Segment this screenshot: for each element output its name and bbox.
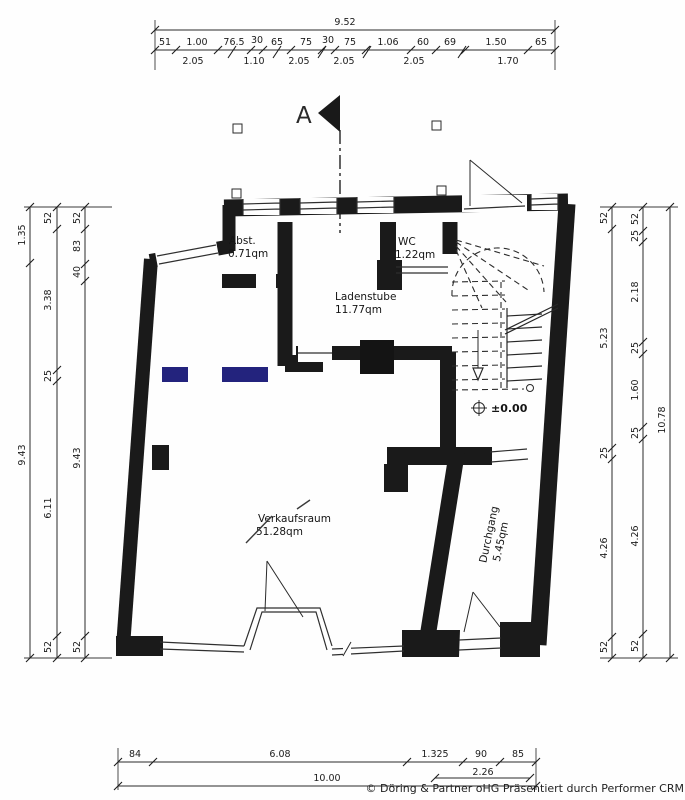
dim-left: 1.35 <box>17 224 28 245</box>
dim-left: 83 <box>72 240 83 252</box>
room-abst-name: Abst. <box>229 235 256 247</box>
dim-left: 52 <box>43 641 54 653</box>
dim-right: 52 <box>630 213 641 225</box>
dim-top: 30 <box>251 35 263 46</box>
staircase <box>452 240 558 392</box>
dim-right: 5.23 <box>599 327 610 348</box>
highlight-marks <box>162 367 268 382</box>
dim-right: 2.18 <box>630 281 641 302</box>
diagonal-window <box>155 241 219 268</box>
dim-right: 52 <box>599 212 610 224</box>
dim-bottom: 84 <box>129 749 141 760</box>
room-abst-area: 0.71qm <box>228 248 268 260</box>
dim-top: 75 <box>300 37 312 48</box>
wall-pier <box>402 630 460 657</box>
dim-left: 3.38 <box>43 289 54 310</box>
door-opening <box>462 195 527 212</box>
section-letter: A <box>296 103 312 129</box>
dim-bottom-overall: 10.00 <box>313 773 340 784</box>
room-ladenstube-area: 11.77qm <box>335 304 382 316</box>
stair-direction-arrow-icon <box>473 368 483 380</box>
dim-chain-left: 1.35 9.43 52 3.38 25 6.11 52 52 83 40 9.… <box>17 203 89 662</box>
room-wc-area: 1.22qm <box>395 249 435 261</box>
dim-left: 40 <box>72 266 83 278</box>
dim-right: 4.26 <box>630 525 641 546</box>
copyright-text: © Döring & Partner oHG Präsentiert durch… <box>366 782 684 795</box>
dim-right: 25 <box>630 342 641 354</box>
dim-chain-right: 52 5.23 25 4.26 52 52 25 2.18 25 1.60 25… <box>599 203 674 662</box>
level-marker: ±0.00 <box>471 400 528 416</box>
dim-bottom: 1.325 <box>421 749 448 760</box>
dim-top: 1.00 <box>186 37 207 48</box>
dim-top2: 1.70 <box>497 56 518 67</box>
dim-right: 25 <box>599 447 610 459</box>
wall-pier <box>152 445 169 470</box>
blue-mark <box>222 367 268 382</box>
room-verkaufsraum-area: 51.28qm <box>256 526 303 538</box>
dim-left: 52 <box>72 212 83 224</box>
wall-foot <box>377 260 402 290</box>
dim-top2: 1.10 <box>243 56 264 67</box>
dim-top: 76.5 <box>223 37 244 48</box>
dim-right: 1.60 <box>630 379 641 400</box>
dim-right: 52 <box>630 640 641 652</box>
dim-top: 1.50 <box>485 37 506 48</box>
corridor-threshold <box>490 449 528 462</box>
dim-top2: 2.05 <box>403 56 424 67</box>
dim-top: 69 <box>444 37 456 48</box>
door-swing <box>464 592 500 632</box>
dim-bottom: 6.08 <box>269 749 290 760</box>
dim-top2: 2.05 <box>333 56 354 67</box>
chimney-block <box>360 340 394 374</box>
dim-left: 9.43 <box>72 447 83 468</box>
dim-right: 52 <box>599 641 610 653</box>
dim-left: 52 <box>43 212 54 224</box>
dim-top: 60 <box>417 37 429 48</box>
dim-right: 25 <box>630 427 641 439</box>
extension-lines <box>24 20 678 790</box>
dim-top-overall: 9.52 <box>334 17 355 28</box>
door-opening <box>256 272 276 290</box>
dim-right: 25 <box>630 230 641 242</box>
dim-left: 6.11 <box>43 497 54 518</box>
dim-bottom-sub: 2.26 <box>472 767 493 778</box>
dim-top2: 2.05 <box>288 56 309 67</box>
dim-bottom: 90 <box>475 749 487 760</box>
room-ladenstube-name: Ladenstube <box>335 291 396 303</box>
walls <box>116 202 568 657</box>
dim-top: 51 <box>159 37 171 48</box>
dim-top: 65 <box>535 37 547 48</box>
dim-top2: 2.05 <box>182 56 203 67</box>
room-wc-name: WC <box>398 236 416 248</box>
dim-left: 25 <box>43 370 54 382</box>
dim-left: 52 <box>72 641 83 653</box>
floor-plan-scan: 9.52 51 1.00 76.5 30 65 75 30 75 1.06 60… <box>0 0 685 800</box>
level-label: ±0.00 <box>491 402 528 415</box>
wall-foot <box>384 464 408 492</box>
dim-right: 4.26 <box>599 537 610 558</box>
dim-top: 75 <box>344 37 356 48</box>
section-marker-flag-icon <box>318 95 340 132</box>
dim-chain-top: 9.52 51 1.00 76.5 30 65 75 30 75 1.06 60… <box>151 17 559 67</box>
blue-mark <box>162 367 188 382</box>
floor-plan-drawing: 9.52 51 1.00 76.5 30 65 75 30 75 1.06 60… <box>0 0 685 800</box>
dim-bottom: 85 <box>512 749 524 760</box>
dim-left: 9.43 <box>17 444 28 465</box>
dim-top: 30 <box>322 35 334 46</box>
dim-top: 1.06 <box>377 37 398 48</box>
reference-squares <box>232 121 446 198</box>
dim-right: 10.78 <box>657 406 668 433</box>
wall-pier <box>500 622 540 657</box>
